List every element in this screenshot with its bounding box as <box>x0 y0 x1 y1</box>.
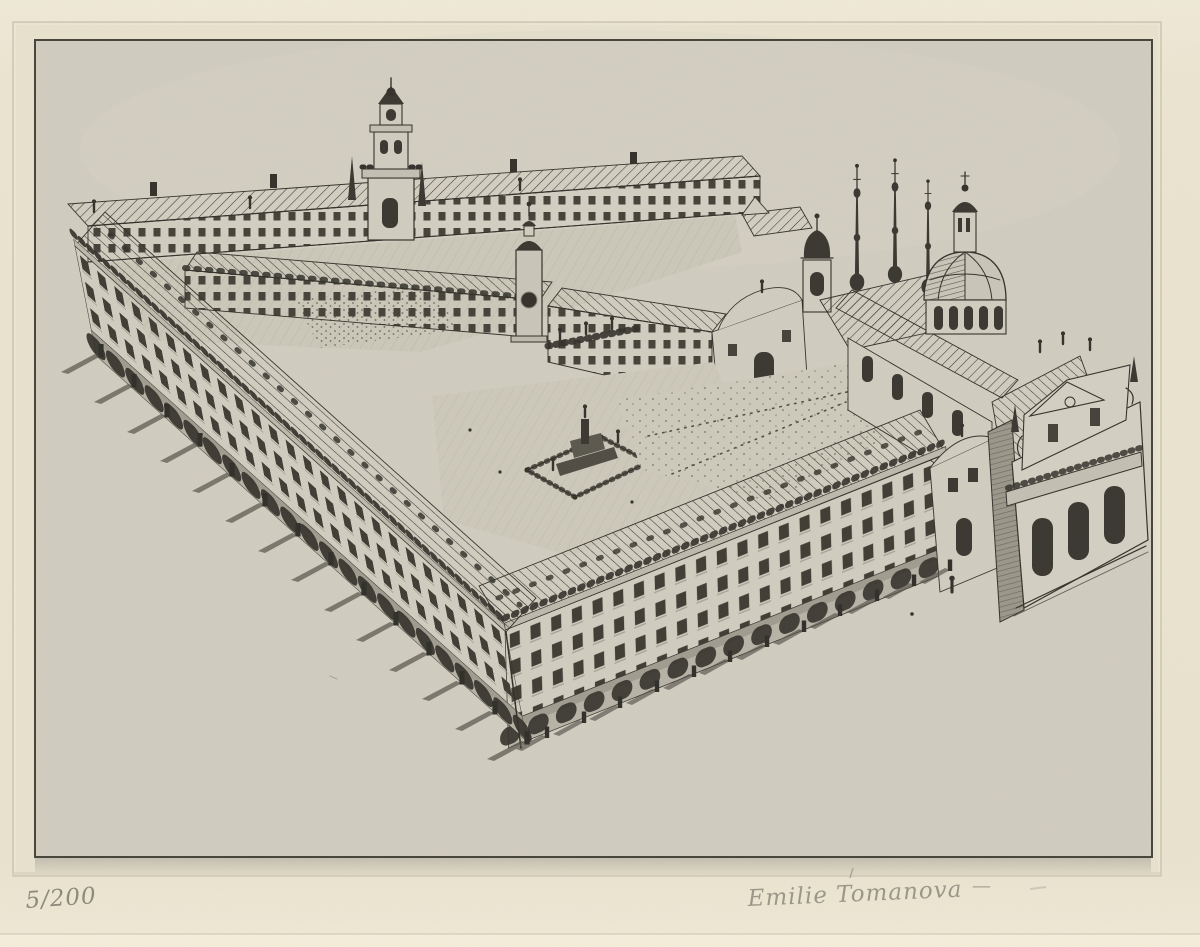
framed-etching-photo: 5/200 Emilie Tomanova — <box>0 0 1200 947</box>
paper-grain-overlay <box>0 0 1200 947</box>
